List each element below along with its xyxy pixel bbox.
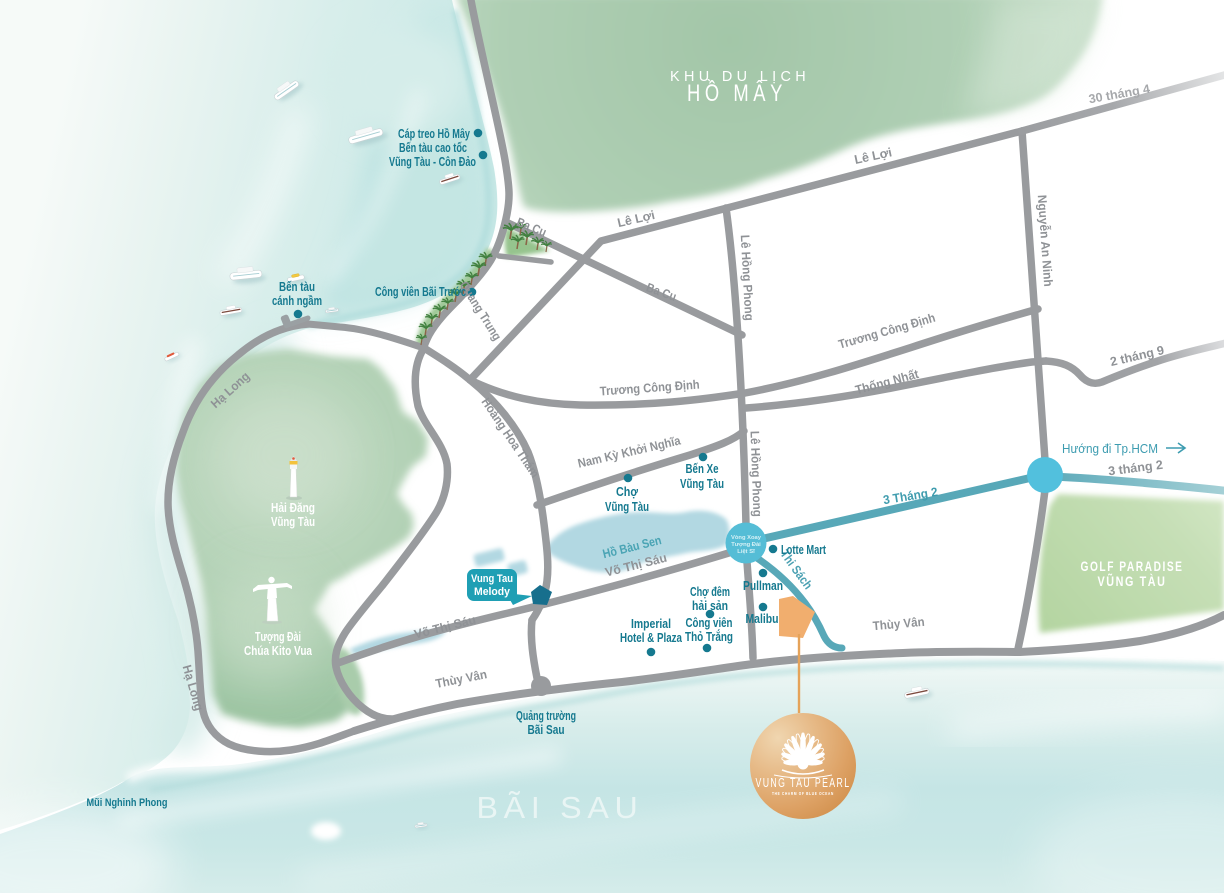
svg-text:THE CHARM OF BLUE OCEAN: THE CHARM OF BLUE OCEAN: [772, 791, 834, 796]
svg-text:Tượng Đài: Tượng Đài: [731, 542, 761, 548]
svg-text:Thỏ Trắng: Thỏ Trắng: [685, 629, 733, 644]
svg-text:Bến tàu cao tốc: Bến tàu cao tốc: [399, 141, 467, 155]
svg-text:Bến tàu: Bến tàu: [279, 280, 315, 294]
svg-text:Bãi Sau: Bãi Sau: [528, 723, 565, 737]
svg-text:hải sản: hải sản: [692, 599, 728, 613]
svg-text:cánh ngầm: cánh ngầm: [272, 294, 322, 308]
svg-text:HỒ MÂY: HỒ MÂY: [687, 79, 787, 107]
svg-text:Hotel & Plaza: Hotel & Plaza: [620, 631, 683, 645]
svg-text:Imperial: Imperial: [631, 617, 671, 631]
svg-text:Hướng đi Tp.HCM: Hướng đi Tp.HCM: [1062, 441, 1158, 456]
svg-text:Mũi Nghinh Phong: Mũi Nghinh Phong: [87, 797, 168, 809]
svg-text:Chợ: Chợ: [616, 485, 638, 499]
svg-text:Công viên: Công viên: [686, 616, 733, 630]
svg-text:Lotte Mart: Lotte Mart: [781, 543, 827, 557]
svg-text:Melody: Melody: [474, 586, 511, 598]
svg-text:Chợ đêm: Chợ đêm: [690, 585, 730, 599]
svg-text:Vũng Tàu - Côn Đảo: Vũng Tàu - Côn Đảo: [389, 155, 476, 169]
svg-text:Liệt Sĩ: Liệt Sĩ: [737, 549, 755, 555]
svg-text:Vũng Tàu: Vũng Tàu: [271, 515, 315, 529]
svg-text:Cáp treo Hồ Mây: Cáp treo Hồ Mây: [398, 127, 470, 141]
svg-text:Vòng Xoay: Vòng Xoay: [731, 535, 762, 541]
svg-text:Tượng Đài: Tượng Đài: [255, 630, 301, 644]
svg-text:Vũng Tàu: Vũng Tàu: [680, 477, 724, 491]
svg-text:Vũng Tàu: Vũng Tàu: [605, 500, 649, 514]
svg-text:Hải Đăng: Hải Đăng: [271, 501, 315, 515]
svg-text:Quảng trường: Quảng trường: [516, 709, 576, 723]
svg-text:VUNG TAU PEARL: VUNG TAU PEARL: [756, 776, 851, 790]
svg-text:VŨNG TÀU: VŨNG TÀU: [1098, 574, 1167, 589]
svg-text:Lê Hồng Phong: Lê Hồng Phong: [748, 431, 765, 517]
svg-text:Công viên Bãi Trước: Công viên Bãi Trước: [375, 285, 466, 299]
svg-text:Malibu: Malibu: [746, 612, 779, 626]
svg-text:Pullman: Pullman: [743, 579, 783, 593]
svg-text:Vung Tau: Vung Tau: [471, 573, 513, 585]
svg-text:BÃI SAU: BÃI SAU: [477, 790, 644, 825]
svg-text:Bến Xe: Bến Xe: [686, 462, 719, 476]
svg-text:GOLF PARADISE: GOLF PARADISE: [1081, 559, 1184, 574]
svg-text:Chúa Kito Vua: Chúa Kito Vua: [244, 644, 313, 658]
